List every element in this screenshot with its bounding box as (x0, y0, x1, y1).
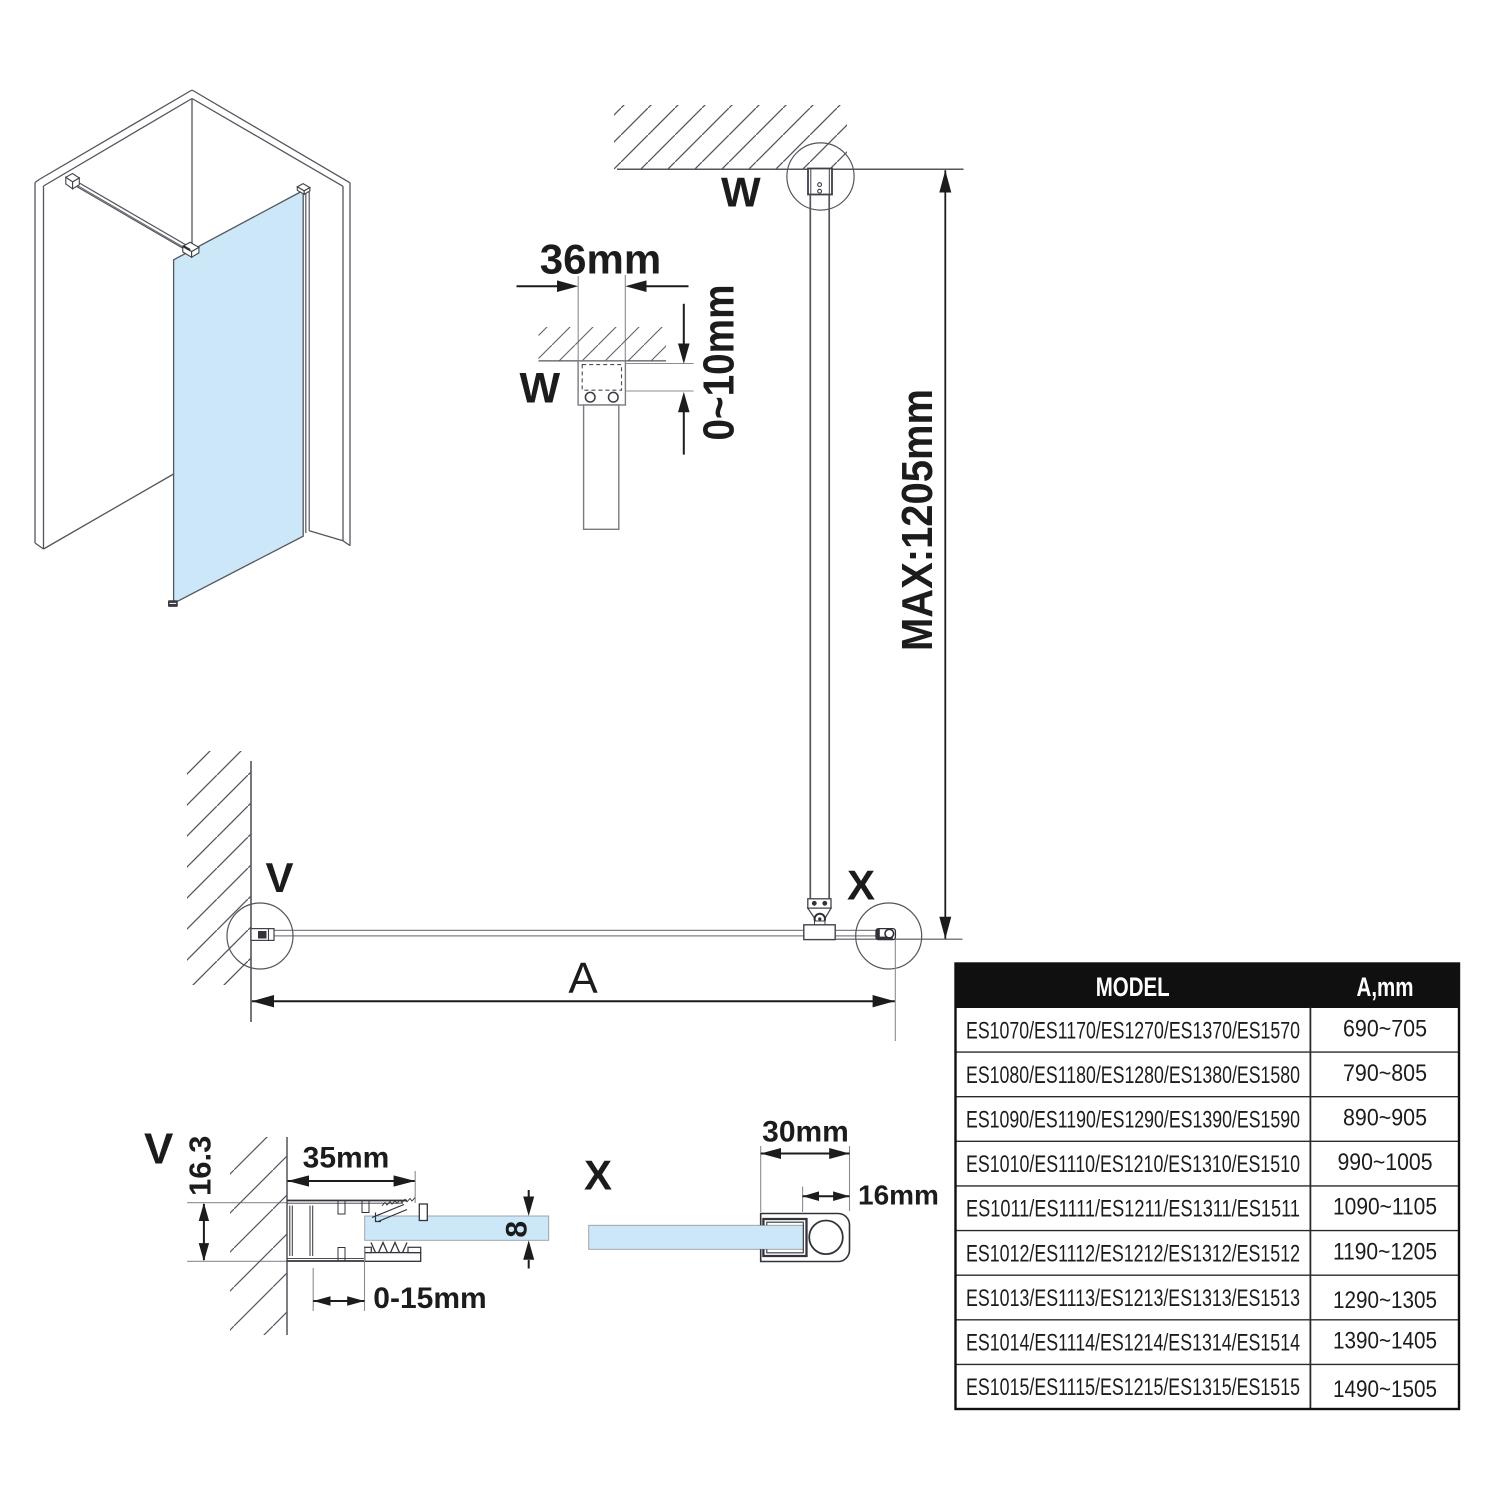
svg-text:1490~1505: 1490~1505 (1333, 1376, 1437, 1403)
svg-text:V: V (266, 854, 294, 901)
svg-text:ES1070/ES1170/ES1270/ES1370/ES: ES1070/ES1170/ES1270/ES1370/ES1570 (966, 1017, 1300, 1044)
svg-text:ES1010/ES1110/ES1210/ES1310/ES: ES1010/ES1110/ES1210/ES1310/ES1510 (966, 1151, 1300, 1178)
svg-text:16mm: 16mm (858, 1180, 939, 1211)
svg-text:MODEL: MODEL (1096, 972, 1170, 1002)
svg-text:ES1080/ES1180/ES1280/ES1380/ES: ES1080/ES1180/ES1280/ES1380/ES1580 (966, 1062, 1300, 1089)
svg-text:30mm: 30mm (762, 1116, 849, 1149)
svg-text:ES1015/ES1115/ES1215/ES1315/ES: ES1015/ES1115/ES1215/ES1315/ES1515 (966, 1374, 1300, 1401)
svg-text:ES1011/ES1111/ES1211/ES1311/ES: ES1011/ES1111/ES1211/ES1311/ES1511 (966, 1196, 1300, 1223)
svg-text:0~10mm: 0~10mm (695, 285, 744, 441)
svg-text:ES1014/ES1114/ES1214/ES1314/ES: ES1014/ES1114/ES1214/ES1314/ES1514 (966, 1330, 1300, 1357)
svg-text:A,mm: A,mm (1357, 972, 1414, 1002)
svg-text:X: X (584, 1152, 612, 1199)
svg-text:V: V (144, 1125, 174, 1174)
svg-text:0-15mm: 0-15mm (373, 1282, 486, 1315)
svg-text:890~905: 890~905 (1343, 1105, 1427, 1132)
svg-text:ES1013/ES1113/ES1213/ES1313/ES: ES1013/ES1113/ES1213/ES1313/ES1513 (966, 1285, 1300, 1312)
svg-text:W: W (520, 365, 561, 413)
svg-text:790~805: 790~805 (1343, 1060, 1427, 1087)
svg-text:ES1012/ES1112/ES1212/ES1312/ES: ES1012/ES1112/ES1212/ES1312/ES1512 (966, 1240, 1300, 1267)
svg-text:8: 8 (501, 1221, 534, 1238)
svg-text:ES1090/ES1190/ES1290/ES1390/ES: ES1090/ES1190/ES1290/ES1390/ES1590 (966, 1107, 1300, 1134)
svg-text:MAX:1205mm: MAX:1205mm (893, 389, 942, 651)
svg-text:1190~1205: 1190~1205 (1333, 1238, 1437, 1265)
svg-text:990~1005: 990~1005 (1338, 1149, 1433, 1176)
svg-text:A: A (568, 954, 598, 1003)
svg-text:35mm: 35mm (303, 1142, 390, 1175)
svg-text:X: X (847, 862, 875, 909)
svg-text:690~705: 690~705 (1343, 1015, 1427, 1042)
svg-text:16.3: 16.3 (183, 1136, 218, 1196)
svg-text:1090~1105: 1090~1105 (1333, 1194, 1437, 1221)
svg-text:W: W (721, 169, 761, 216)
svg-text:1390~1405: 1390~1405 (1333, 1328, 1437, 1355)
svg-text:36mm: 36mm (540, 236, 661, 283)
svg-text:1290~1305: 1290~1305 (1333, 1287, 1437, 1314)
